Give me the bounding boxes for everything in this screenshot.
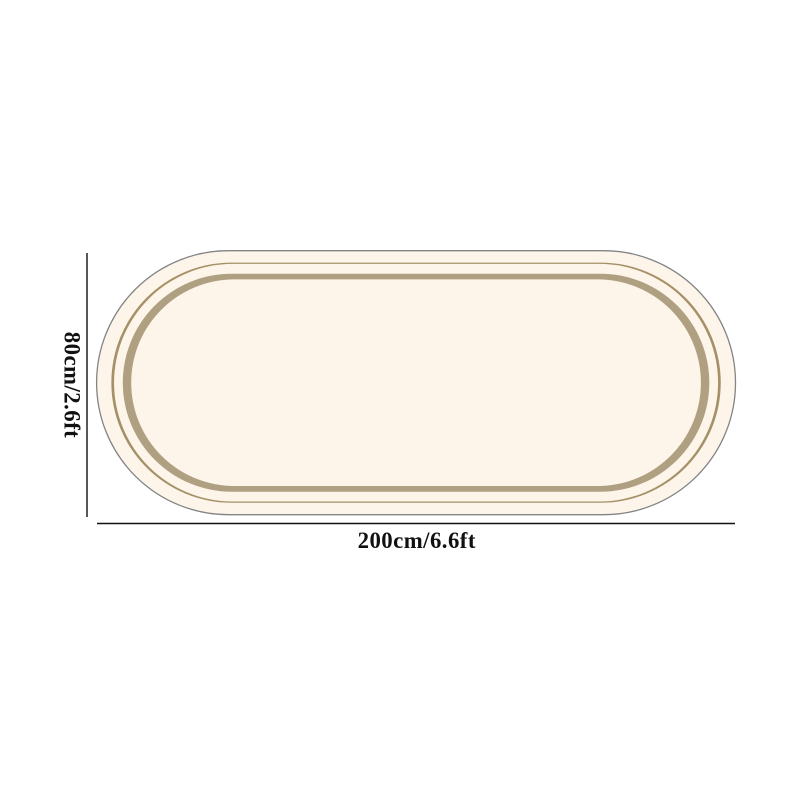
svg-text:80cm/2.6ft: 80cm/2.6ft xyxy=(59,332,84,438)
svg-text:200cm/6.6ft: 200cm/6.6ft xyxy=(358,528,476,553)
